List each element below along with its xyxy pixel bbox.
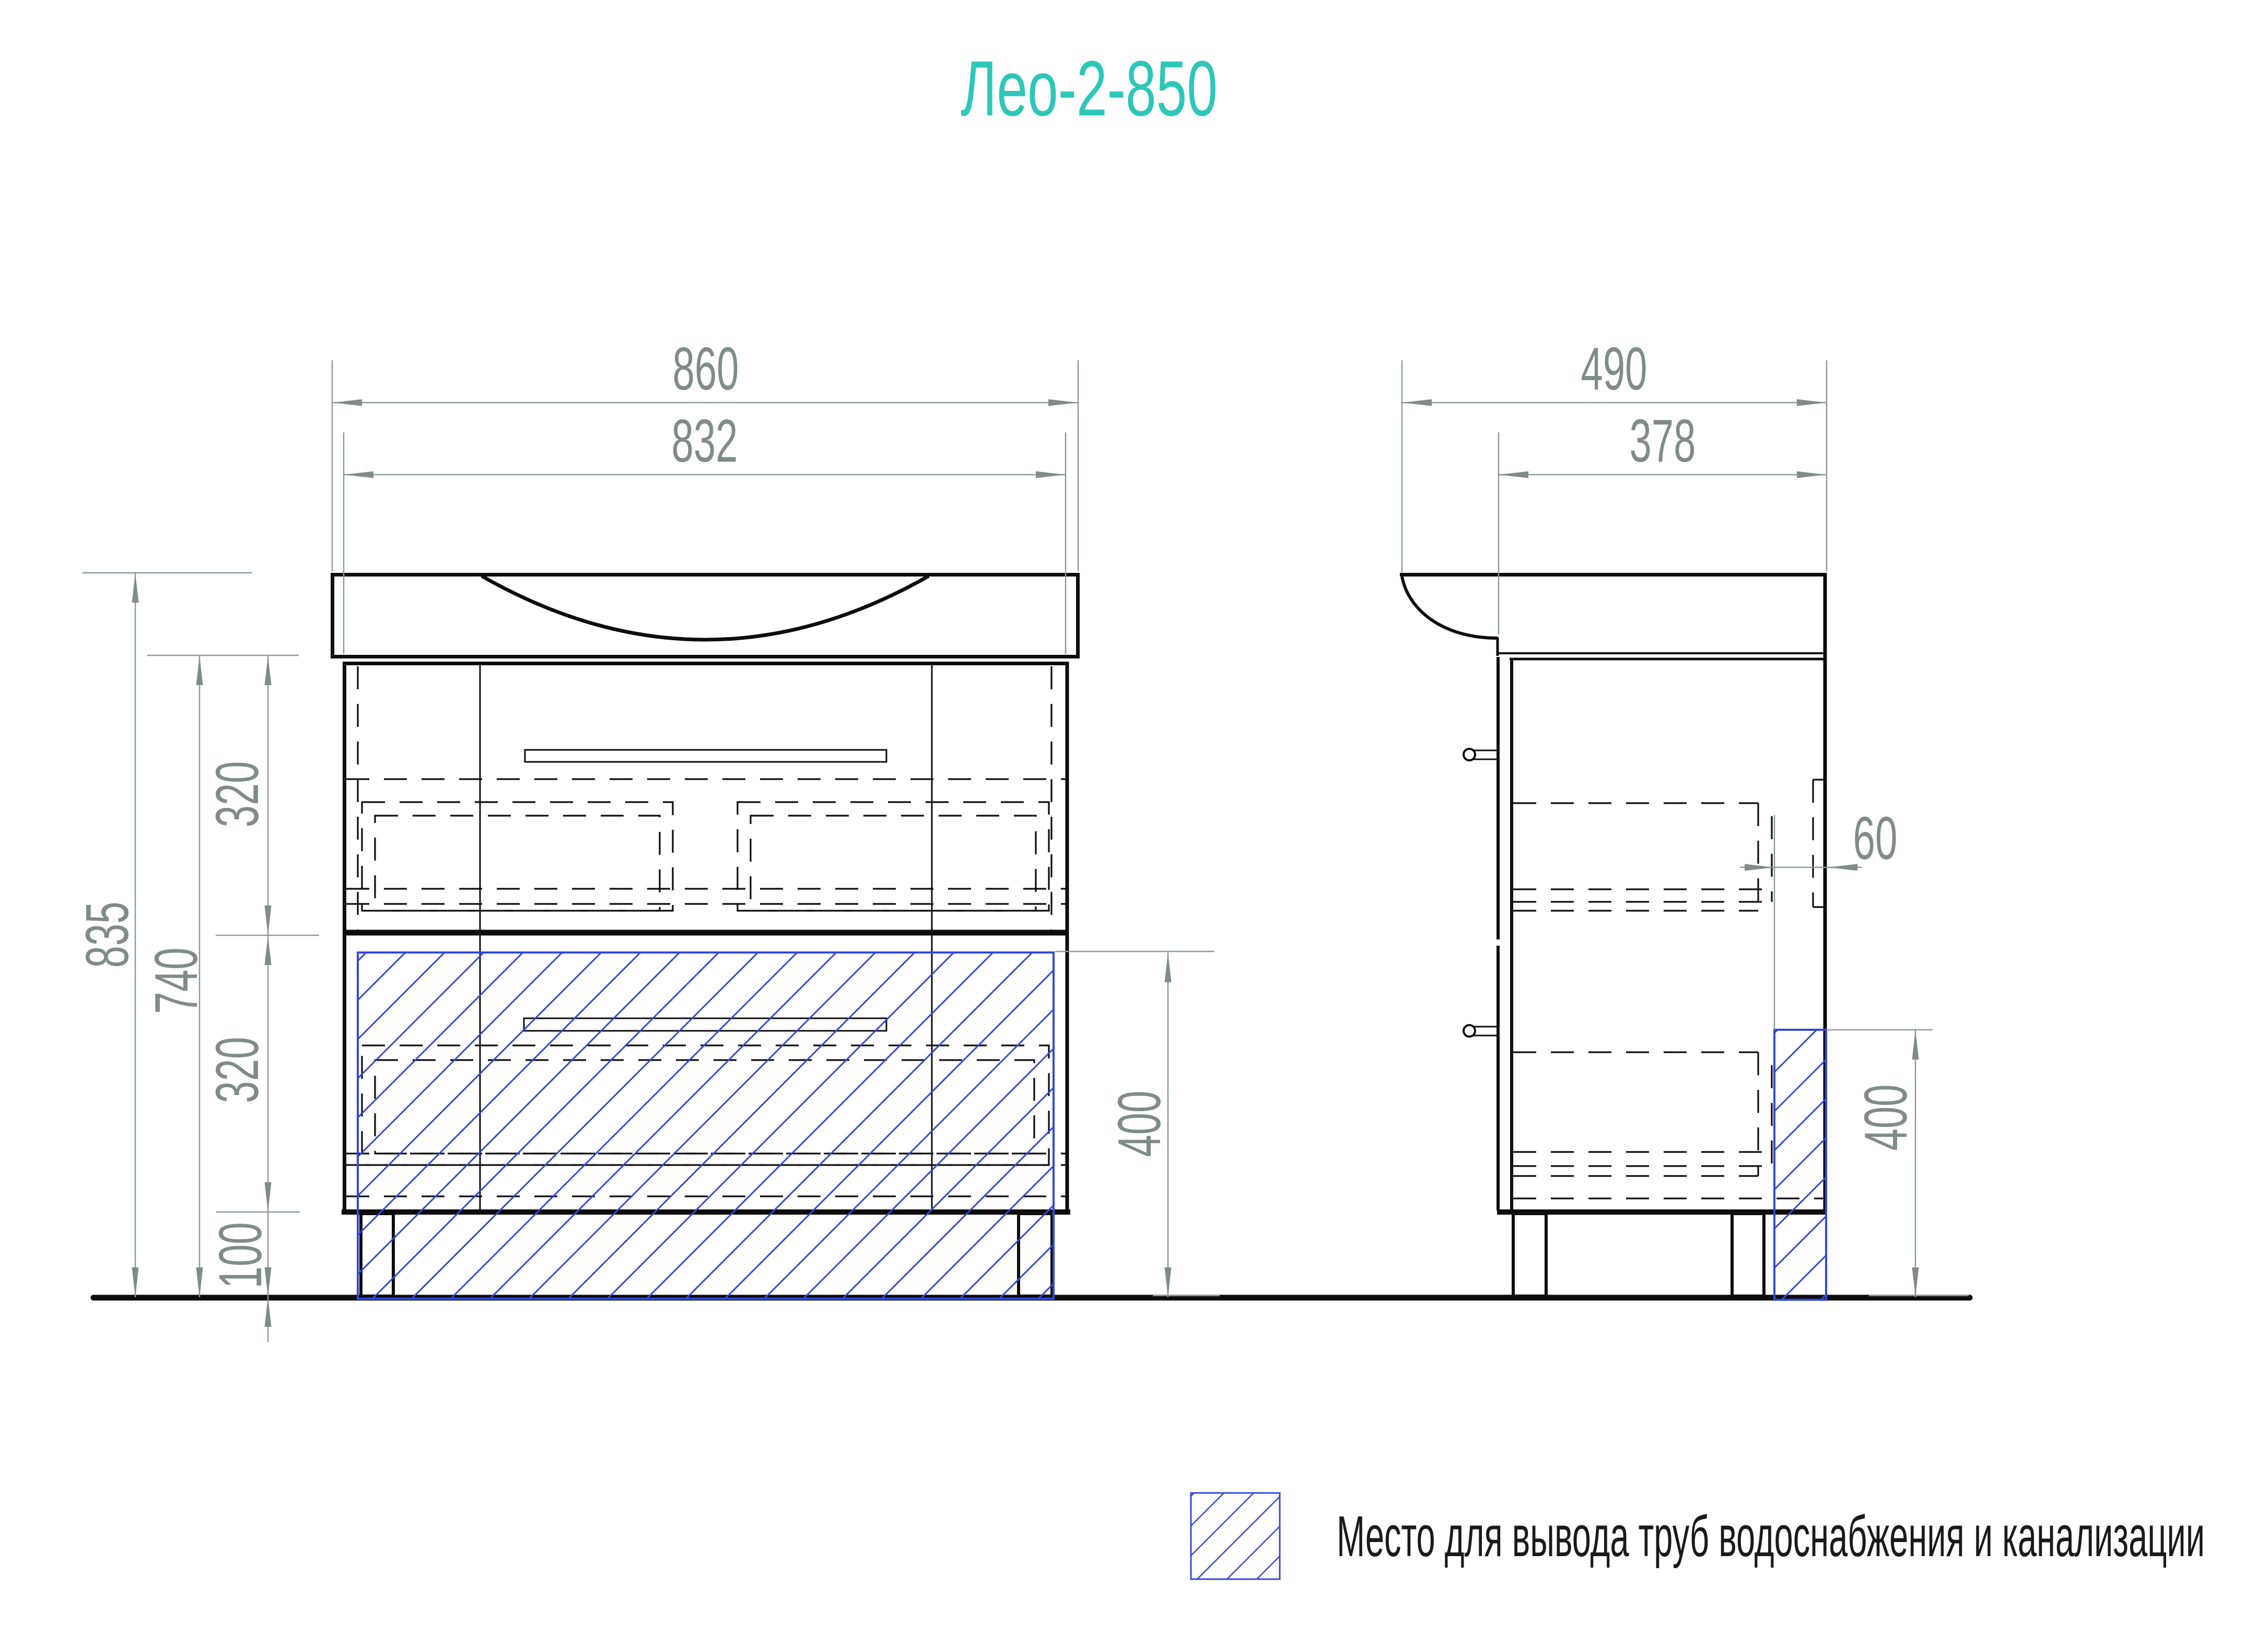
svg-text:860: 860: [673, 335, 739, 403]
svg-text:Место для вывода труб водоснаб: Место для вывода труб водоснабжения и ка…: [1337, 1504, 2205, 1569]
svg-text:740: 740: [142, 948, 210, 1014]
svg-text:400: 400: [1852, 1085, 1920, 1151]
svg-text:400: 400: [1105, 1091, 1173, 1157]
svg-text:320: 320: [203, 1037, 271, 1103]
svg-text:832: 832: [672, 407, 738, 475]
svg-text:490: 490: [1581, 335, 1647, 403]
svg-text:60: 60: [1853, 804, 1898, 872]
svg-text:320: 320: [203, 761, 271, 828]
svg-text:Лео-2-850: Лео-2-850: [961, 44, 1218, 132]
svg-text:100: 100: [206, 1222, 274, 1289]
svg-text:378: 378: [1630, 407, 1696, 475]
svg-text:835: 835: [73, 902, 141, 968]
